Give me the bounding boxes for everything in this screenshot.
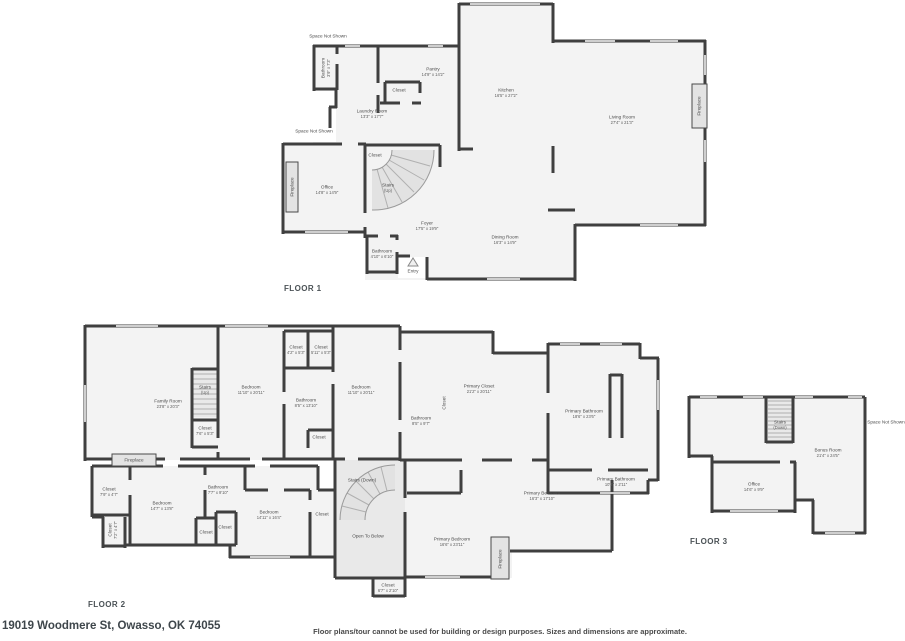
floor3-title: FLOOR 3 (690, 537, 727, 546)
fireplace-icon (692, 84, 707, 128)
fireplace-icon (491, 537, 509, 579)
disclaimer-text: Floor plans/tour cannot be used for buil… (313, 627, 687, 636)
floorplan-canvas (0, 0, 905, 641)
floor2-walls (84, 325, 659, 597)
floor2-title: FLOOR 2 (88, 600, 125, 609)
floor1-walls (282, 3, 707, 281)
floor-plan-page: Space Not ShownBathroom3'9" x 7'3"Laundr… (0, 0, 905, 641)
void-mask (795, 501, 812, 533)
fireplace-icon (112, 454, 156, 466)
floor3-walls (688, 396, 866, 534)
property-address: 19019 Woodmere St, Owasso, OK 74055 (2, 620, 220, 632)
fireplace-icon (286, 162, 298, 212)
floor1-title: FLOOR 1 (284, 284, 321, 293)
stairs-fill (767, 397, 792, 442)
stairs-fill (193, 369, 217, 417)
